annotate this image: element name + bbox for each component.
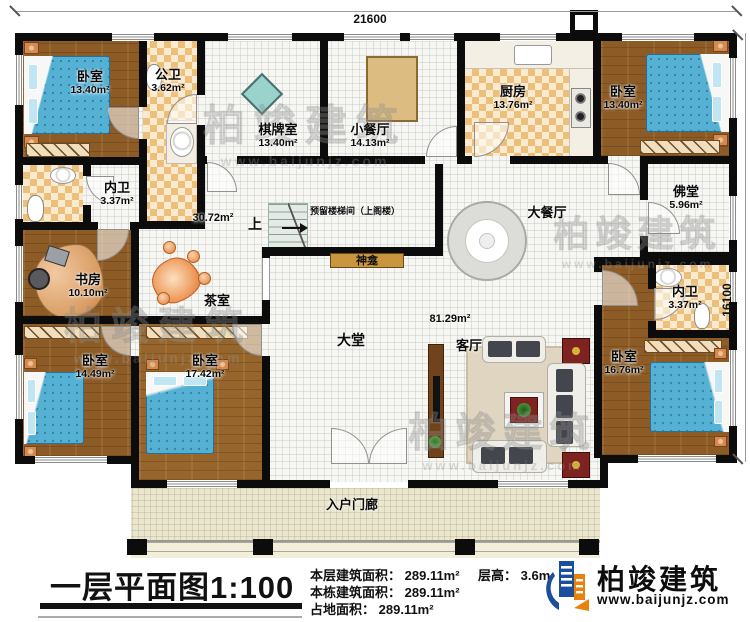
room-name: 大餐厅: [518, 206, 576, 220]
window: [344, 33, 400, 41]
room-name: 书房: [60, 273, 116, 287]
room-label-ensuite-left: 内卫 3.37m²: [92, 181, 142, 207]
room-label-public-bath: 公卫 3.62m²: [144, 68, 192, 94]
room-label-kitchen: 厨房 13.76m²: [486, 85, 540, 111]
stairs-arrow-line: [282, 227, 302, 229]
pillow: [714, 400, 723, 424]
room-area: 13.40m²: [62, 84, 118, 96]
wall: [262, 300, 270, 324]
wall: [594, 305, 602, 458]
area-value: 81.29m²: [420, 313, 480, 326]
window: [500, 33, 556, 41]
stairs-note: 预留楼梯间（上阁楼）: [310, 207, 410, 217]
room-name: 卧室: [177, 354, 233, 368]
stat-footprint-area: 占地面积： 289.11m²: [310, 599, 434, 618]
sofa-cushion: [516, 341, 540, 357]
cased-opening: [262, 258, 270, 300]
wardrobe: [24, 326, 100, 339]
sofa-cushion: [481, 447, 505, 464]
window: [15, 185, 23, 219]
porch-column: [579, 539, 599, 555]
wall: [15, 222, 98, 230]
window: [15, 246, 23, 302]
wall: [457, 33, 465, 156]
room-name: 卧室: [596, 85, 650, 99]
wardrobe: [26, 143, 90, 157]
wardrobe: [644, 340, 722, 353]
wall: [640, 156, 737, 164]
room-name: 卧室: [596, 350, 652, 364]
stairs-up-text: 上: [246, 217, 264, 232]
wall: [457, 156, 472, 164]
burner-icon: [574, 92, 587, 105]
outside-area: [600, 463, 750, 560]
wall: [197, 33, 205, 95]
window: [15, 55, 23, 105]
pillow: [27, 411, 36, 435]
room-label-ensuite-right: 内卫 3.37m²: [660, 285, 710, 311]
sofa-cushion: [509, 447, 533, 464]
room-area: 14.13m²: [341, 137, 399, 149]
room-label-small-dining: 小餐厅 14.13m²: [341, 123, 399, 149]
wall: [131, 316, 139, 326]
window: [729, 196, 737, 240]
wall: [510, 156, 608, 164]
room-label-living-room: 客厅: [446, 339, 492, 353]
room-area: 16.76m²: [596, 364, 652, 376]
room-name: 客厅: [446, 339, 492, 353]
nightstand: [24, 42, 39, 54]
room-area: 13.40m²: [249, 137, 307, 149]
pillow: [153, 376, 177, 386]
window: [638, 455, 716, 463]
wall: [600, 455, 608, 488]
stat-label: 占地面积：: [310, 602, 375, 617]
room-area: 17.42m²: [177, 368, 233, 380]
room-name: 棋牌室: [249, 123, 307, 137]
room-label-big-dining: 大餐厅: [518, 206, 576, 220]
pillow: [714, 369, 723, 393]
tea-stool: [157, 292, 170, 305]
nightstand: [146, 359, 159, 370]
wall: [262, 356, 270, 488]
stairs-note-text: 预留楼梯间（上阁楼）: [310, 207, 410, 217]
room-label-study: 书房 10.10m²: [60, 273, 116, 299]
wall: [83, 161, 91, 176]
porch-column: [127, 539, 147, 555]
window: [410, 33, 454, 41]
porch-slab: [126, 488, 626, 540]
room-label-bedroom-br: 卧室 16.76m²: [596, 350, 652, 376]
room-name: 小餐厅: [341, 123, 399, 137]
wall: [594, 257, 602, 272]
floor-plan-page: 21600 16100: [0, 0, 750, 622]
dimension-line-right: [745, 33, 746, 462]
window: [35, 456, 107, 464]
room-name: 内卫: [660, 285, 710, 299]
lazy-susan: [479, 233, 495, 249]
sofa-cushion: [556, 395, 573, 418]
window: [228, 33, 292, 41]
pillow: [27, 379, 36, 403]
plant-icon: [429, 436, 441, 448]
kitchen-sink: [514, 45, 552, 65]
flue-box: [570, 10, 598, 35]
window: [15, 355, 23, 419]
room-label-bedroom-tl: 卧室 13.40m²: [62, 70, 118, 96]
room-area: 13.40m²: [596, 99, 650, 111]
stat-label: 本层建筑面积：: [310, 568, 401, 583]
window: [622, 33, 694, 41]
porch-column: [455, 539, 475, 555]
tv-icon: [433, 376, 440, 422]
room-name: 厨房: [486, 85, 540, 99]
pillow: [28, 64, 38, 90]
room-label-bedroom-tr: 卧室 13.40m²: [596, 85, 650, 111]
wall: [435, 164, 443, 248]
wall: [237, 156, 425, 164]
plant-icon: [517, 403, 531, 417]
burner-icon: [574, 110, 587, 123]
stat-floor-height: 层高： 3.6m: [478, 565, 550, 584]
area-value: 30.72m²: [183, 212, 243, 225]
pillow: [28, 98, 38, 124]
toilet-icon: [27, 195, 44, 222]
room-label-porch: 入户门廊: [320, 498, 384, 512]
wall: [648, 265, 656, 289]
room-name: 入户门廊: [320, 498, 384, 512]
pillow: [712, 62, 722, 88]
page-title: 一层平面图1:100: [50, 562, 294, 607]
stat-value: 289.11m²: [405, 568, 460, 583]
lamp-icon: [572, 461, 580, 469]
stat-label: 层高：: [478, 568, 517, 583]
lobby-area-label: 81.29m²: [420, 313, 480, 326]
wall: [131, 356, 139, 464]
wall: [197, 125, 205, 221]
shrine-label: 神龛: [356, 255, 378, 267]
room-label-buddhist-hall: 佛堂 5.96m²: [659, 185, 713, 211]
tea-stool: [198, 272, 211, 285]
sink-icon: [170, 127, 194, 157]
stat-value: 289.11m²: [405, 585, 460, 600]
porch-column: [253, 539, 273, 555]
room-label-bedroom-bm: 卧室 17.42m²: [177, 354, 233, 380]
nightstand: [714, 436, 727, 447]
outside-area: [15, 464, 131, 560]
room-name: 卧室: [62, 70, 118, 84]
wall: [408, 480, 498, 488]
room-area: 3.62m²: [144, 82, 192, 94]
dimension-right-label: 16100: [720, 275, 734, 325]
dimension-top-label: 21600: [338, 12, 402, 26]
desk-chair: [28, 268, 50, 290]
room-name: 公卫: [144, 68, 192, 82]
room-label-chess-room: 棋牌室 13.40m²: [249, 123, 307, 149]
tea-stool: [187, 250, 200, 263]
room-name: 卧室: [67, 354, 123, 368]
sofa-cushion: [556, 421, 573, 444]
wall: [648, 330, 737, 338]
logo-icon: [543, 556, 591, 614]
shrine-shelf: 神龛: [330, 253, 404, 268]
wall: [640, 164, 648, 200]
room-area: 13.76m²: [486, 99, 540, 111]
stairs-arrow-head: [300, 223, 308, 233]
tea-stool: [163, 241, 176, 254]
window: [729, 350, 737, 426]
logo-building-icon: [543, 556, 591, 614]
wall: [197, 156, 207, 164]
pillow: [712, 96, 722, 122]
sink-icon: [50, 167, 76, 184]
stairs-direction: 上: [246, 217, 264, 232]
room-area: 14.49m²: [67, 368, 123, 380]
room-name: 内卫: [92, 181, 142, 195]
room-area: 3.37m²: [92, 195, 142, 207]
window: [167, 480, 237, 488]
title-underline: [40, 603, 302, 609]
window: [112, 33, 154, 41]
wall: [15, 316, 270, 324]
room-name: 佛堂: [659, 185, 713, 199]
nightstand: [714, 348, 727, 359]
room-label-tea-room: 茶室: [194, 294, 240, 308]
room-area: 5.96m²: [659, 199, 713, 211]
window: [729, 58, 737, 118]
room-label-lobby: 大堂: [328, 333, 374, 348]
room-area: 3.37m²: [660, 299, 710, 311]
room-name: 大堂: [328, 333, 374, 348]
nightstand: [24, 358, 37, 369]
wardrobe: [640, 140, 720, 154]
sofa-cushion: [556, 369, 573, 392]
room-area: 10.10m²: [60, 287, 116, 299]
window: [498, 480, 568, 488]
stat-value: 289.11m²: [379, 602, 434, 617]
dining-table-small: [366, 56, 418, 122]
lamp-icon: [572, 347, 580, 355]
room-label-bedroom-bl: 卧室 14.49m²: [67, 354, 123, 380]
nightstand: [713, 40, 728, 52]
wall: [237, 480, 330, 488]
title-underline-thin: [38, 616, 302, 618]
logo-url: www.baijunjz.com: [597, 592, 730, 607]
wall: [594, 257, 737, 265]
stat-label: 本栋建筑面积：: [310, 585, 401, 600]
wall: [131, 480, 167, 488]
wall: [15, 157, 139, 165]
hall-area-label: 30.72m²: [183, 212, 243, 225]
wall: [320, 33, 328, 164]
wall: [131, 222, 139, 316]
room-name: 茶室: [194, 294, 240, 308]
